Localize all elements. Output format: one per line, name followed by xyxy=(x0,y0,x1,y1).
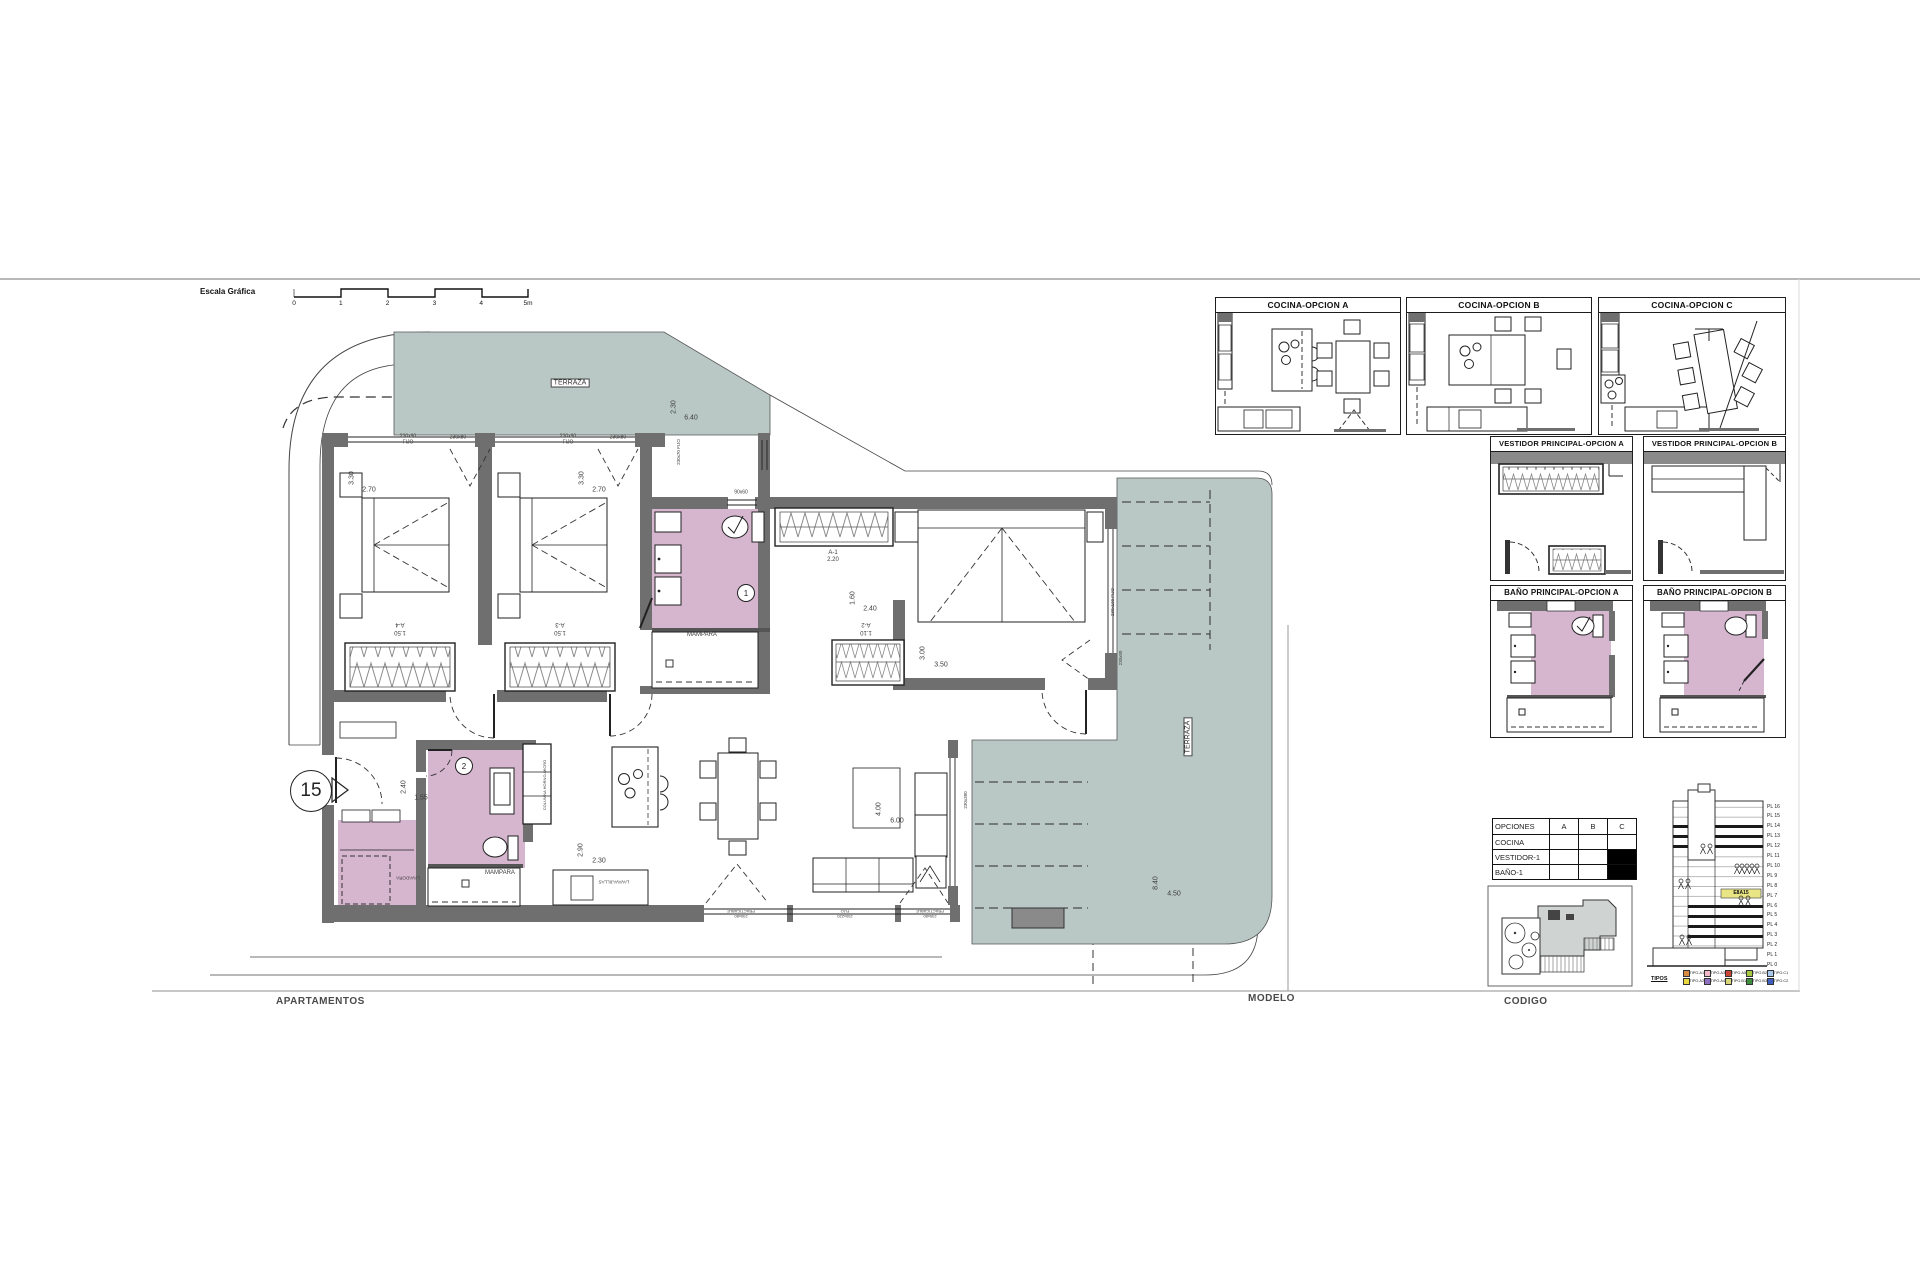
plan-label: 230x380 xyxy=(964,791,969,808)
scale-tick: 3 xyxy=(433,300,437,307)
plan-label: PRACTICABLE xyxy=(727,909,755,913)
stack-floor-label: PL 9 xyxy=(1767,873,1777,879)
plan-label: 3.50 xyxy=(934,662,948,669)
stack-floor-label: PL 10 xyxy=(1767,863,1780,869)
room-number: 2 xyxy=(455,757,473,775)
building-stack: E8A15 TIPOS PL 16PL 15PL 14PL 13PL 12PL … xyxy=(1645,788,1797,1000)
stack-floor-label: PL 0 xyxy=(1767,962,1777,968)
legend-label: TIPO.C2 xyxy=(1774,979,1789,983)
plan-label: 1.55 xyxy=(414,795,428,802)
plan-label: 230x80 xyxy=(450,436,466,441)
plan-label: FIJO xyxy=(563,441,574,446)
footer-modelo: MODELO xyxy=(1248,993,1295,1004)
vestidor-a-drawing xyxy=(1491,452,1632,580)
plan-label: 6.00 xyxy=(890,818,904,825)
panel-cocina-c-title: COCINA-OPCION C xyxy=(1599,298,1785,313)
scale-tick: 2 xyxy=(386,300,390,307)
panel-cocina-b-title: COCINA-OPCION B xyxy=(1407,298,1591,313)
panel-bano-b-title: BAÑO PRINCIPAL-OPCION B xyxy=(1644,586,1785,601)
cocina-a-drawing xyxy=(1216,313,1400,435)
bano-b-drawing xyxy=(1644,601,1785,737)
stack-floor-label: PL 1 xyxy=(1767,952,1777,958)
options-table: OPCIONESABCCOCINAVESTIDOR-1BAÑO-1 xyxy=(1492,818,1637,880)
plan-label: 2.40 xyxy=(401,780,408,794)
room-number: 1 xyxy=(737,584,755,602)
plan-label: FIJO xyxy=(403,441,414,446)
unit-number: 15 xyxy=(300,780,321,802)
plan-label: 230x220 xyxy=(837,914,852,918)
unit-number-marker: 15 xyxy=(290,770,332,812)
options-header-cell: OPCIONES xyxy=(1493,819,1550,835)
plan-label: 230x190 FIJO xyxy=(1111,588,1116,616)
plan-label: 2.20 xyxy=(827,557,839,563)
panel-vestidor-a-title: VESTIDOR PRINCIPAL-OPCION A xyxy=(1491,437,1632,452)
bano-a-drawing xyxy=(1491,601,1632,737)
panel-vestidor-b: VESTIDOR PRINCIPAL-OPCION B xyxy=(1643,436,1786,581)
footer-apartamentos: APARTAMENTOS xyxy=(276,996,365,1007)
plan-label: 2.90 xyxy=(578,843,585,857)
plan-label: COLUMNA HORNO-MICRO xyxy=(543,760,547,810)
plan-label: 230x80 xyxy=(734,914,747,918)
options-cell xyxy=(1550,865,1579,880)
plan-label: 230x80 xyxy=(610,436,626,441)
stack-floor-label: PL 14 xyxy=(1767,823,1780,829)
plan-label: 6.40 xyxy=(684,415,698,422)
stack-legend-title: TIPOS xyxy=(1651,976,1668,982)
legend-label: TIPO.B3 xyxy=(1753,979,1768,983)
options-cell xyxy=(1608,835,1637,850)
options-row-label: COCINA xyxy=(1493,835,1550,850)
stack-floor-label: PL 6 xyxy=(1767,903,1777,909)
stack-floor-label: PL 7 xyxy=(1767,893,1777,899)
stack-floor-label: PL 4 xyxy=(1767,922,1777,928)
legend-label: TIPO.A1 xyxy=(1690,971,1705,975)
footer-codigo: CODIGO xyxy=(1504,996,1548,1007)
legend-label: TIPO.A2 xyxy=(1690,979,1705,983)
options-table-header: OPCIONESABC xyxy=(1493,819,1637,835)
stack-floor-label: PL 16 xyxy=(1767,804,1780,810)
legend-label: TIPO.B2 xyxy=(1753,971,1768,975)
plan-label: A-3 xyxy=(555,621,564,627)
panel-bano-a-title: BAÑO PRINCIPAL-OPCION A xyxy=(1491,586,1632,601)
options-row-label: VESTIDOR-1 xyxy=(1493,850,1550,865)
drawing-sheet: Escala Gráfica 012345m TERRAZATERRAZA2.3… xyxy=(0,0,1920,1280)
options-header-cell: A xyxy=(1550,819,1579,835)
plan-label: 2.70 xyxy=(592,487,606,494)
options-header-cell: C xyxy=(1608,819,1637,835)
panel-cocina-a-title: COCINA-OPCION A xyxy=(1216,298,1400,313)
scale-tick: 1 xyxy=(339,300,343,307)
plan-label: 2.40 xyxy=(863,606,877,613)
plan-label: 4.50 xyxy=(1167,891,1181,898)
plan-label: LAVADORA xyxy=(396,875,420,880)
plan-label: 230x80 xyxy=(923,914,936,918)
stack-floor-label: PL 13 xyxy=(1767,833,1780,839)
options-cell xyxy=(1550,850,1579,865)
plan-label: TERRAZA xyxy=(1184,718,1193,757)
legend-label: TIPO.A5 xyxy=(1732,971,1747,975)
vestidor-b-drawing xyxy=(1644,452,1785,580)
panel-cocina-a: COCINA-OPCION A xyxy=(1215,297,1401,435)
options-cell xyxy=(1550,835,1579,850)
plan-label: 1.50 xyxy=(554,629,566,635)
options-cell xyxy=(1579,850,1608,865)
panel-vestidor-b-title: VESTIDOR PRINCIPAL-OPCION B xyxy=(1644,437,1785,452)
options-cell xyxy=(1608,865,1637,880)
options-table-row: BAÑO-1 xyxy=(1493,865,1637,880)
cocina-b-drawing xyxy=(1407,313,1591,435)
plan-label: 4.00 xyxy=(876,802,883,816)
options-cell xyxy=(1608,850,1637,865)
plan-label: 2.70 xyxy=(362,487,376,494)
panel-bano-a: BAÑO PRINCIPAL-OPCION A xyxy=(1490,585,1633,738)
scale-tick: 5m xyxy=(523,300,532,307)
stack-floor-label: PL 12 xyxy=(1767,843,1780,849)
plan-label: MAMPARA xyxy=(687,632,717,638)
panel-cocina-c: COCINA-OPCION C xyxy=(1598,297,1786,435)
plan-label: FIJO xyxy=(841,909,850,913)
plan-label: 230x80 xyxy=(1119,651,1124,666)
legend-label: TIPO.C1 xyxy=(1774,971,1789,975)
scale-tick: 0 xyxy=(292,300,296,307)
plan-label: PRACTICABLE xyxy=(916,909,944,913)
plan-label: 3.30 xyxy=(579,471,586,485)
stack-unit-label: E8A15 xyxy=(1733,890,1748,896)
legend-label: TIPO.A3 xyxy=(1711,971,1726,975)
stack-floor-label: PL 5 xyxy=(1767,912,1777,918)
scale-tick: 4 xyxy=(479,300,483,307)
plan-label: A-1 xyxy=(828,550,837,556)
plan-label: TERRAZA xyxy=(551,379,590,388)
plan-label: 2.30 xyxy=(671,400,678,414)
plan-label: 3.30 xyxy=(349,471,356,485)
plan-label: 2.30 xyxy=(592,858,606,865)
plan-label: 230x70 FIJO xyxy=(677,439,682,465)
cocina-c-drawing xyxy=(1599,313,1785,435)
options-row-label: BAÑO-1 xyxy=(1493,865,1550,880)
scale-bar-label: Escala Gráfica xyxy=(200,287,255,296)
plan-label: LAVAVAJILLAS xyxy=(599,879,630,884)
options-table-row: COCINA xyxy=(1493,835,1637,850)
plan-label: 3.00 xyxy=(920,646,927,660)
panel-cocina-b: COCINA-OPCION B xyxy=(1406,297,1592,435)
panel-vestidor-a: VESTIDOR PRINCIPAL-OPCION A xyxy=(1490,436,1633,581)
plan-label: 1.60 xyxy=(850,591,857,605)
stack-floor-label: PL 3 xyxy=(1767,932,1777,938)
stack-floor-label: PL 15 xyxy=(1767,813,1780,819)
stack-floor-label: PL 2 xyxy=(1767,942,1777,948)
options-table-row: VESTIDOR-1 xyxy=(1493,850,1637,865)
options-cell xyxy=(1579,865,1608,880)
options-header-cell: B xyxy=(1579,819,1608,835)
plan-label: 1.50 xyxy=(394,629,406,635)
plan-label: A-4 xyxy=(395,621,404,627)
plan-label: 1.10 xyxy=(860,629,872,635)
plan-label: A-2 xyxy=(861,621,870,627)
plan-label: 90x60 xyxy=(734,491,748,496)
stack-floor-label: PL 11 xyxy=(1767,853,1780,859)
plan-label: 8.40 xyxy=(1153,876,1160,890)
panel-bano-b: BAÑO PRINCIPAL-OPCION B xyxy=(1643,585,1786,738)
legend-label: TIPO.A4 xyxy=(1711,979,1726,983)
stack-floor-label: PL 8 xyxy=(1767,883,1777,889)
plan-label: MAMPARA xyxy=(485,870,515,876)
legend-label: TIPO.B1 xyxy=(1732,979,1747,983)
options-cell xyxy=(1579,835,1608,850)
